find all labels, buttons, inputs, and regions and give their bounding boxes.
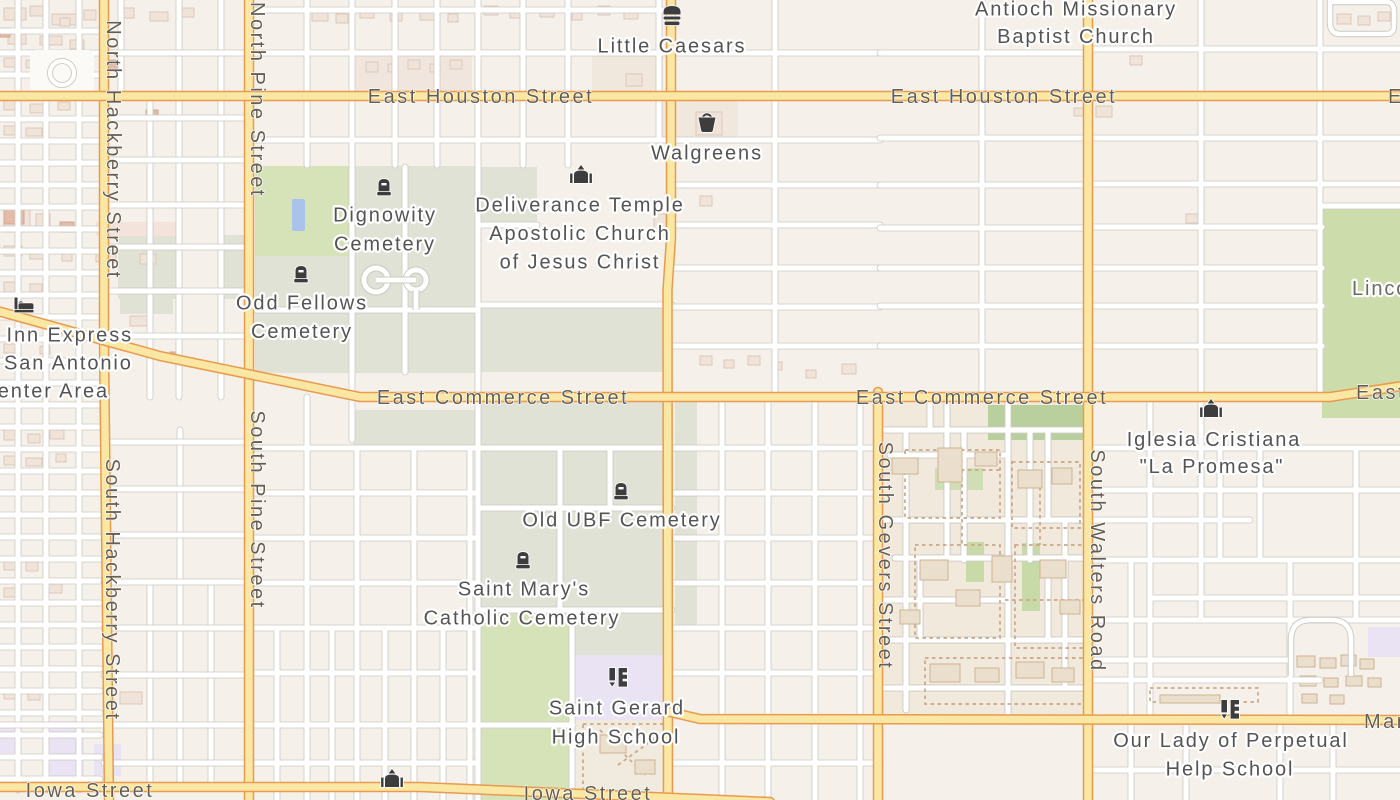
svg-text:Dignowity: Dignowity	[333, 205, 437, 227]
svg-text:Martin Luther King Dr: Martin Luther King Dr	[1364, 711, 1400, 733]
svg-text:North Pine Street: North Pine Street	[246, 2, 268, 198]
svg-text:East Commerce Street: East Commerce Street	[1356, 382, 1400, 404]
svg-text:Center Area: Center Area	[0, 381, 109, 403]
svg-text:High School: High School	[552, 727, 681, 749]
svg-text:Odd Fellows: Odd Fellows	[236, 293, 368, 315]
svg-text:East Commerce Street: East Commerce Street	[856, 387, 1108, 409]
svg-text:Saint Mary's: Saint Mary's	[458, 579, 590, 601]
svg-text:South Walters Road: South Walters Road	[1086, 449, 1108, 672]
svg-text:Cemetery: Cemetery	[251, 321, 353, 343]
svg-text:Holiday Inn Express: Holiday Inn Express	[0, 325, 133, 347]
svg-text:North Hackberry Street: North Hackberry Street	[102, 20, 124, 280]
svg-text:Lincoln Park: Lincoln Park	[1352, 278, 1400, 300]
svg-text:Iowa Street: Iowa Street	[26, 780, 155, 800]
svg-text:of Jesus Christ: of Jesus Christ	[500, 252, 661, 274]
svg-text:Antioch Missionary: Antioch Missionary	[975, 0, 1177, 21]
svg-text:South Hackberry Street: South Hackberry Street	[101, 459, 123, 722]
svg-text:South Pine Street: South Pine Street	[246, 410, 268, 609]
svg-text:"La Promesa": "La Promesa"	[1140, 456, 1285, 478]
svg-text:Saint Gerard: Saint Gerard	[549, 698, 685, 720]
svg-text:East Commerce Street: East Commerce Street	[377, 387, 629, 409]
svg-text:East Houston Street: East Houston Street	[1388, 86, 1400, 108]
svg-text:Help School: Help School	[1166, 759, 1295, 781]
svg-text:Catholic Cemetery: Catholic Cemetery	[424, 608, 621, 630]
svg-text:East Houston Street: East Houston Street	[891, 86, 1117, 108]
svg-text:Our Lady of Perpetual: Our Lady of Perpetual	[1113, 730, 1349, 752]
svg-text:Old UBF Cemetery: Old UBF Cemetery	[522, 510, 721, 532]
svg-text:East Houston Street: East Houston Street	[368, 86, 594, 108]
svg-text:Little Caesars: Little Caesars	[598, 36, 747, 58]
svg-text:San Antonio: San Antonio	[4, 353, 133, 375]
svg-text:Iglesia Cristiana: Iglesia Cristiana	[1127, 429, 1302, 451]
svg-text:Apostolic Church: Apostolic Church	[489, 223, 671, 245]
svg-text:Deliverance Temple: Deliverance Temple	[475, 195, 684, 217]
svg-text:Iowa Street: Iowa Street	[524, 783, 653, 800]
svg-text:Baptist Church: Baptist Church	[997, 26, 1155, 48]
svg-text:Walgreens: Walgreens	[651, 143, 763, 165]
svg-text:Cemetery: Cemetery	[334, 234, 436, 256]
svg-text:South Gevers Street: South Gevers Street	[874, 442, 896, 671]
